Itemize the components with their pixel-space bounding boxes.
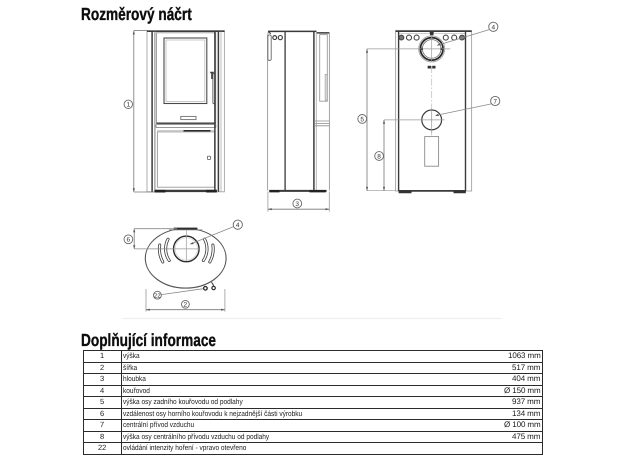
svg-text:4: 4 <box>491 24 495 31</box>
svg-text:6: 6 <box>127 237 131 244</box>
svg-text:8: 8 <box>377 154 381 161</box>
svg-text:1: 1 <box>126 102 130 109</box>
svg-text:3: 3 <box>295 201 299 208</box>
svg-text:2: 2 <box>183 302 187 309</box>
svg-text:22: 22 <box>154 293 161 300</box>
svg-text:7: 7 <box>493 99 497 106</box>
svg-text:4: 4 <box>236 222 240 229</box>
svg-text:5: 5 <box>360 116 364 123</box>
